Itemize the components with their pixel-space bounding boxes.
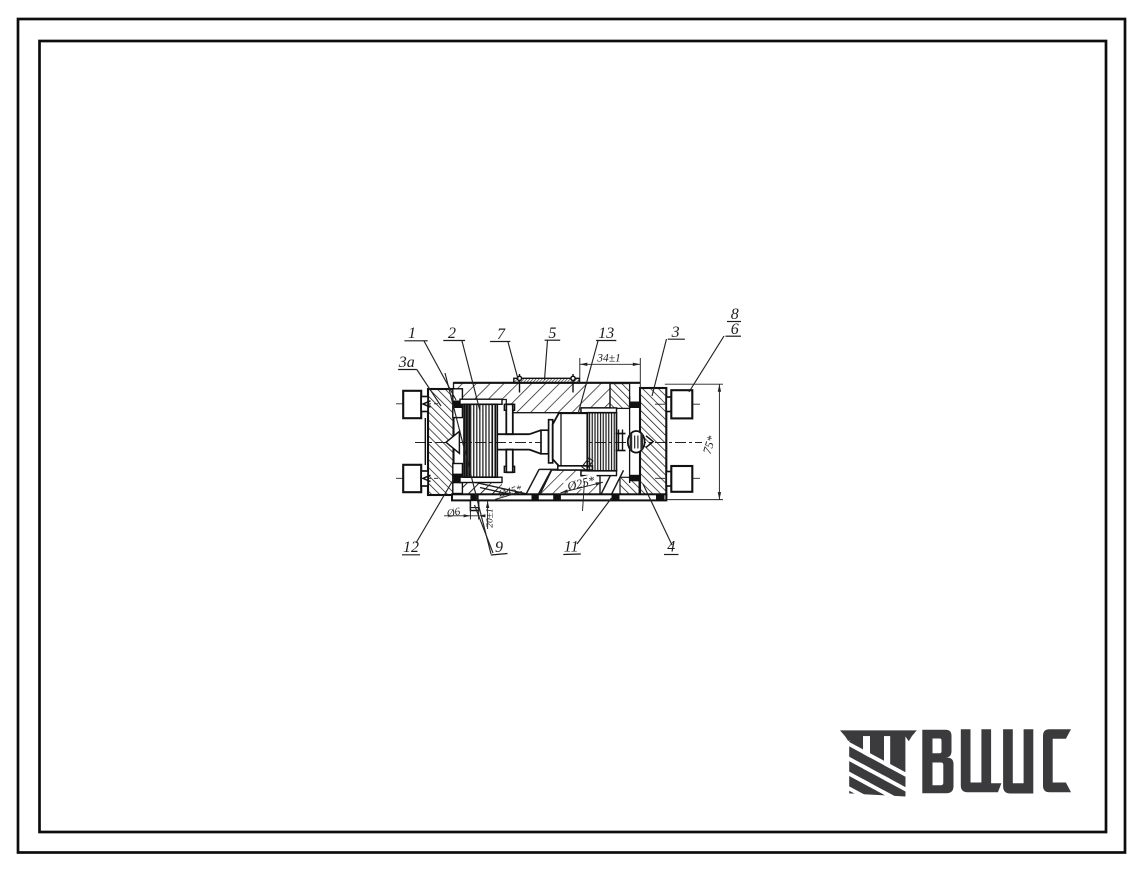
svg-text:13: 13 bbox=[598, 325, 614, 342]
svg-text:11: 11 bbox=[564, 539, 579, 556]
svg-text:4: 4 bbox=[667, 539, 675, 556]
svg-text:3: 3 bbox=[671, 324, 680, 341]
svg-text:3a: 3a bbox=[398, 354, 415, 371]
svg-text:2: 2 bbox=[448, 325, 456, 342]
svg-text:5: 5 bbox=[548, 325, 556, 342]
svg-text:6: 6 bbox=[731, 321, 739, 338]
svg-text:20±1: 20±1 bbox=[486, 508, 496, 527]
svg-text:34±1: 34±1 bbox=[596, 353, 621, 365]
svg-text:1: 1 bbox=[408, 325, 416, 342]
svg-text:12: 12 bbox=[403, 539, 419, 556]
svg-text:7: 7 bbox=[497, 326, 506, 343]
